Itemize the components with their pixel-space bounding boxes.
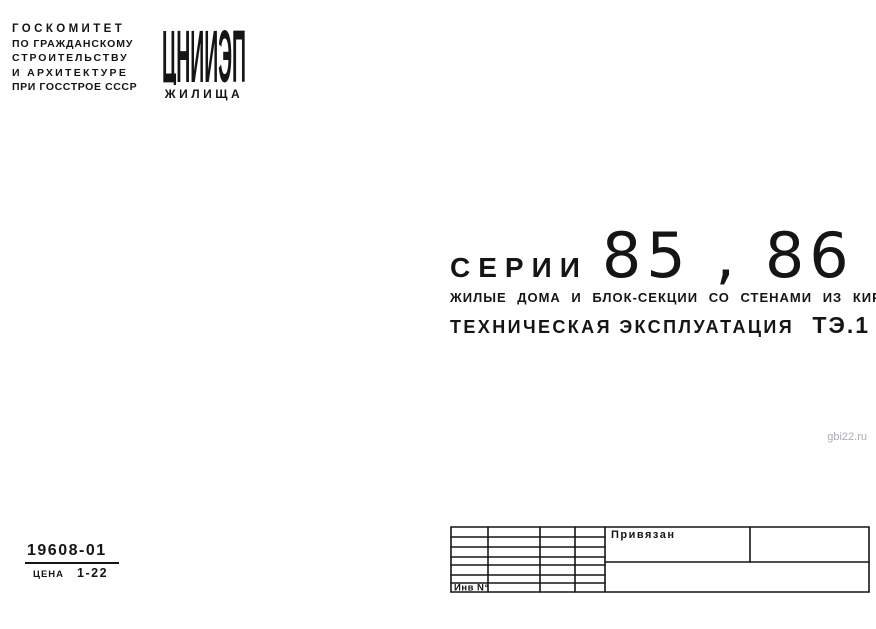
document-page: ГОСКОМИТЕТ ПО ГРАЖДАНСКОМУ СТРОИТЕЛЬСТВУ… xyxy=(0,0,876,629)
logo-acronym-graphic: ЦНИИЭП xyxy=(161,26,247,85)
document-code: ТЭ.1 xyxy=(812,312,870,339)
price: ЦЕНА 1-22 xyxy=(25,566,119,580)
series-title: СЕРИИ 85 , 86 xyxy=(450,226,870,286)
committee-line: ПО ГРАЖДАНСКОМУ xyxy=(12,37,137,52)
price-label: ЦЕНА xyxy=(33,569,64,580)
committee-line: И АРХИТЕКТУРЕ xyxy=(12,66,137,81)
logo-subtitle: ЖИЛИЩА xyxy=(161,87,247,101)
committee-name: ГОСКОМИТЕТ ПО ГРАЖДАНСКОМУ СТРОИТЕЛЬСТВУ… xyxy=(12,22,137,95)
logo-acronym: ЦНИИЭП xyxy=(162,26,246,85)
series-label: СЕРИИ xyxy=(450,252,588,284)
committee-line: ГОСКОМИТЕТ xyxy=(12,22,137,37)
org-logo: ЦНИИЭП ЖИЛИЩА xyxy=(161,26,247,101)
title-section: СЕРИИ 85 , 86 ЖИЛЫЕ ДОМА И БЛОК-СЕКЦИИ С… xyxy=(450,226,870,339)
inventory-label: Инв N° xyxy=(454,583,489,594)
title-block-table: Привязан Инв N° xyxy=(447,526,871,596)
catalog-block: 19608-01 ЦЕНА 1-22 xyxy=(25,542,119,580)
series-numbers: 85 , 86 xyxy=(602,226,854,286)
title-block-grid: Привязан Инв N° xyxy=(447,526,871,596)
watermark: gbi22.ru xyxy=(827,431,867,443)
price-value: 1-22 xyxy=(77,566,108,580)
committee-line: СТРОИТЕЛЬСТВУ xyxy=(12,51,137,66)
document-type: ТЕХНИЧЕСКАЯ ЭКСПЛУАТАЦИЯ xyxy=(450,317,794,338)
document-type-line: ТЕХНИЧЕСКАЯ ЭКСПЛУАТАЦИЯ ТЭ.1 xyxy=(450,312,870,339)
assigned-label: Привязан xyxy=(611,529,676,541)
committee-line: ПРИ ГОССТРОЕ СССР xyxy=(12,80,137,95)
catalog-number: 19608-01 xyxy=(25,542,119,564)
document-subtitle: ЖИЛЫЕ ДОМА И БЛОК-СЕКЦИИ СО СТЕНАМИ ИЗ К… xyxy=(450,290,870,305)
